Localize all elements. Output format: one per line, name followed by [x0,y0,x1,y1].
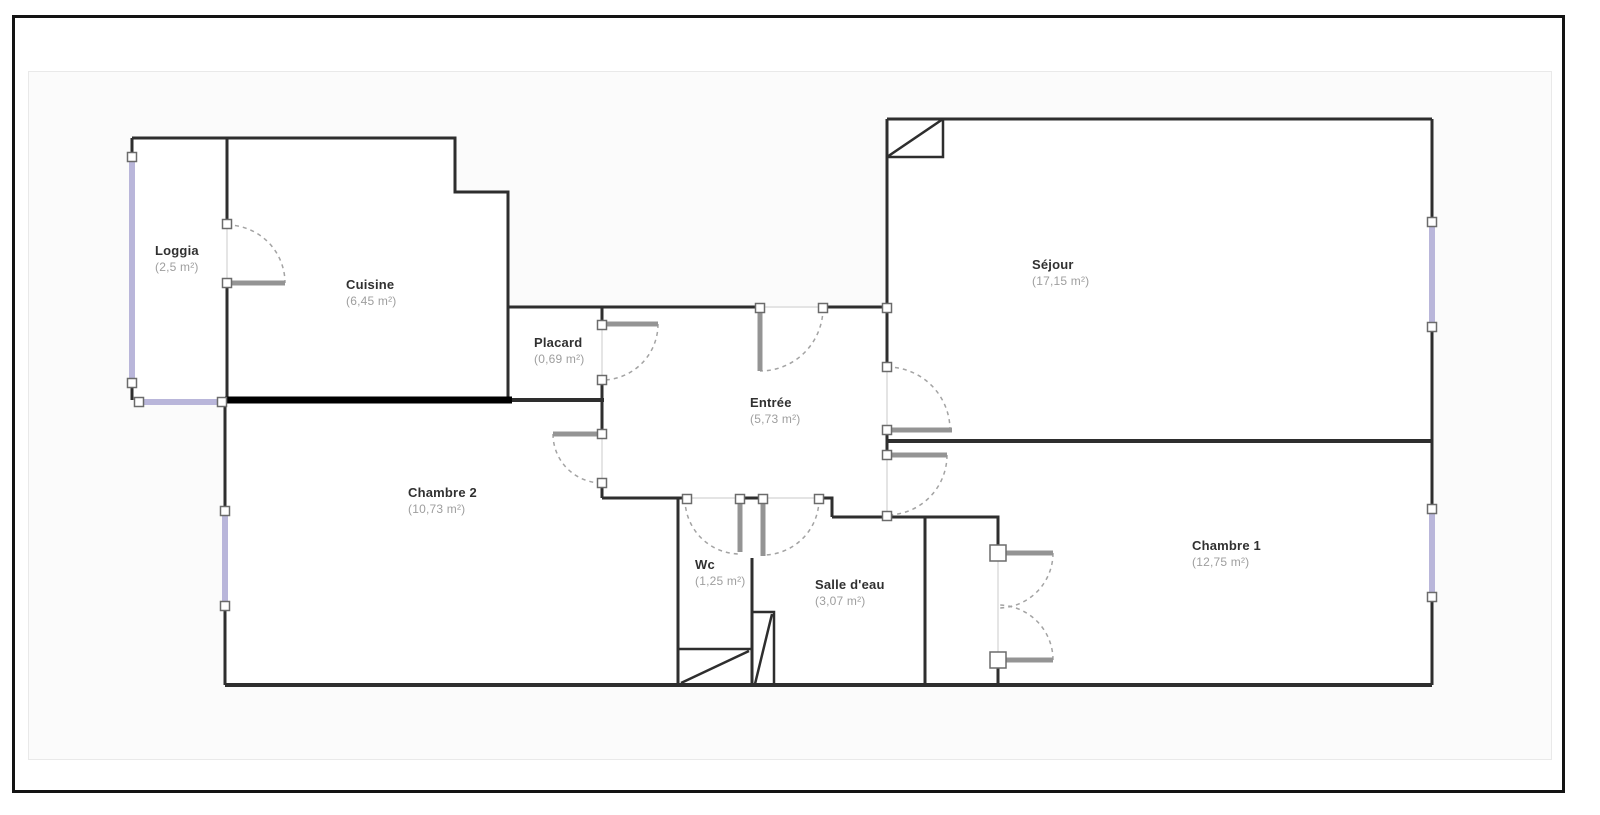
room-label-salle-deau: Salle d'eau (3,07 m²) [815,578,885,607]
room-label-chambre1: Chambre 1 (12,75 m²) [1192,539,1261,568]
room-area: (3,07 m²) [815,595,885,607]
room-label-chambre2: Chambre 2 (10,73 m²) [408,486,477,515]
closet-door-top-handle [990,545,1006,561]
room-label-loggia: Loggia (2,5 m²) [155,244,199,273]
room-label-cuisine: Cuisine (6,45 m²) [346,278,396,307]
room-area: (1,25 m²) [695,575,745,587]
room-label-wc: Wc (1,25 m²) [695,558,745,587]
room-area: (12,75 m²) [1192,556,1261,568]
closet-door-bottom-handle [990,652,1006,668]
floor-plan-page: Loggia (2,5 m²) Cuisine (6,45 m²) Placar… [0,0,1600,815]
room-label-sejour: Séjour (17,15 m²) [1032,258,1089,287]
room-label-entree: Entrée (5,73 m²) [750,396,800,425]
room-name: Wc [695,558,745,571]
room-name: Placard [534,336,584,349]
room-name: Loggia [155,244,199,257]
room-area: (5,73 m²) [750,413,800,425]
room-area: (17,15 m²) [1032,275,1089,287]
room-name: Chambre 2 [408,486,477,499]
room-area: (0,69 m²) [534,353,584,365]
room-name: Entrée [750,396,800,409]
room-name: Chambre 1 [1192,539,1261,552]
room-area: (10,73 m²) [408,503,477,515]
room-name: Séjour [1032,258,1089,271]
room-area: (6,45 m²) [346,295,396,307]
room-name: Salle d'eau [815,578,885,591]
room-label-placard: Placard (0,69 m²) [534,336,584,365]
room-name: Cuisine [346,278,396,291]
room-area: (2,5 m²) [155,261,199,273]
